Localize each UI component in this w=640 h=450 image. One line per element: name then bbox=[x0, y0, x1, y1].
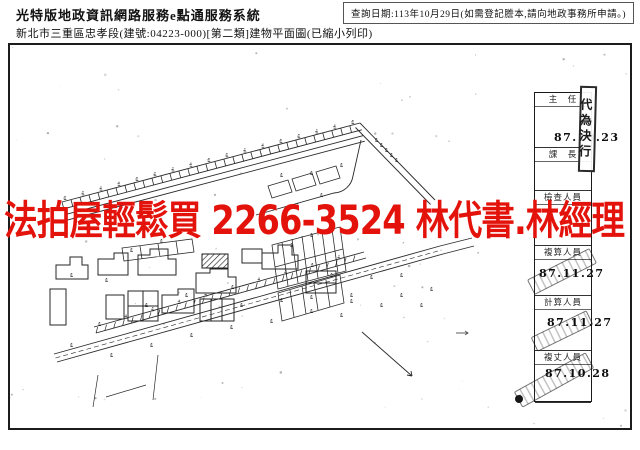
system-title: 光特版地政資訊網路服務e點通服務系統 bbox=[16, 5, 261, 24]
map-buildings bbox=[50, 245, 336, 325]
scanned-building-plan-page: 光特版地政資訊網路服務e點通服務系統 新北市三重區忠孝段(建號:04223-00… bbox=[0, 0, 640, 450]
sig-label: 計算人員 bbox=[535, 296, 591, 310]
document-title: 新北市三重區忠孝段(建號:04223-000)[第二類]建物平面圖(已縮小列印) bbox=[16, 25, 373, 41]
sig-cell-director: 主 任 87.10.23 代為決行 bbox=[535, 93, 591, 148]
auction-ad-banner: 法拍屋輕鬆買 2266-3524 林代書.林經理 bbox=[4, 200, 624, 242]
signature-block: 主 任 87.10.23 代為決行 課 長 檢查人員 複算人員 87.11.27… bbox=[534, 92, 592, 402]
map-roads bbox=[54, 95, 592, 407]
subject-building-hatched bbox=[202, 254, 228, 268]
query-date-box: 查詢日期:113年10月29日(如需登記謄本,請向地政事務所申請。) bbox=[343, 2, 634, 24]
delegate-decision-stamp: 代為決行 bbox=[578, 86, 597, 172]
signature-stamp-seal bbox=[515, 395, 523, 403]
